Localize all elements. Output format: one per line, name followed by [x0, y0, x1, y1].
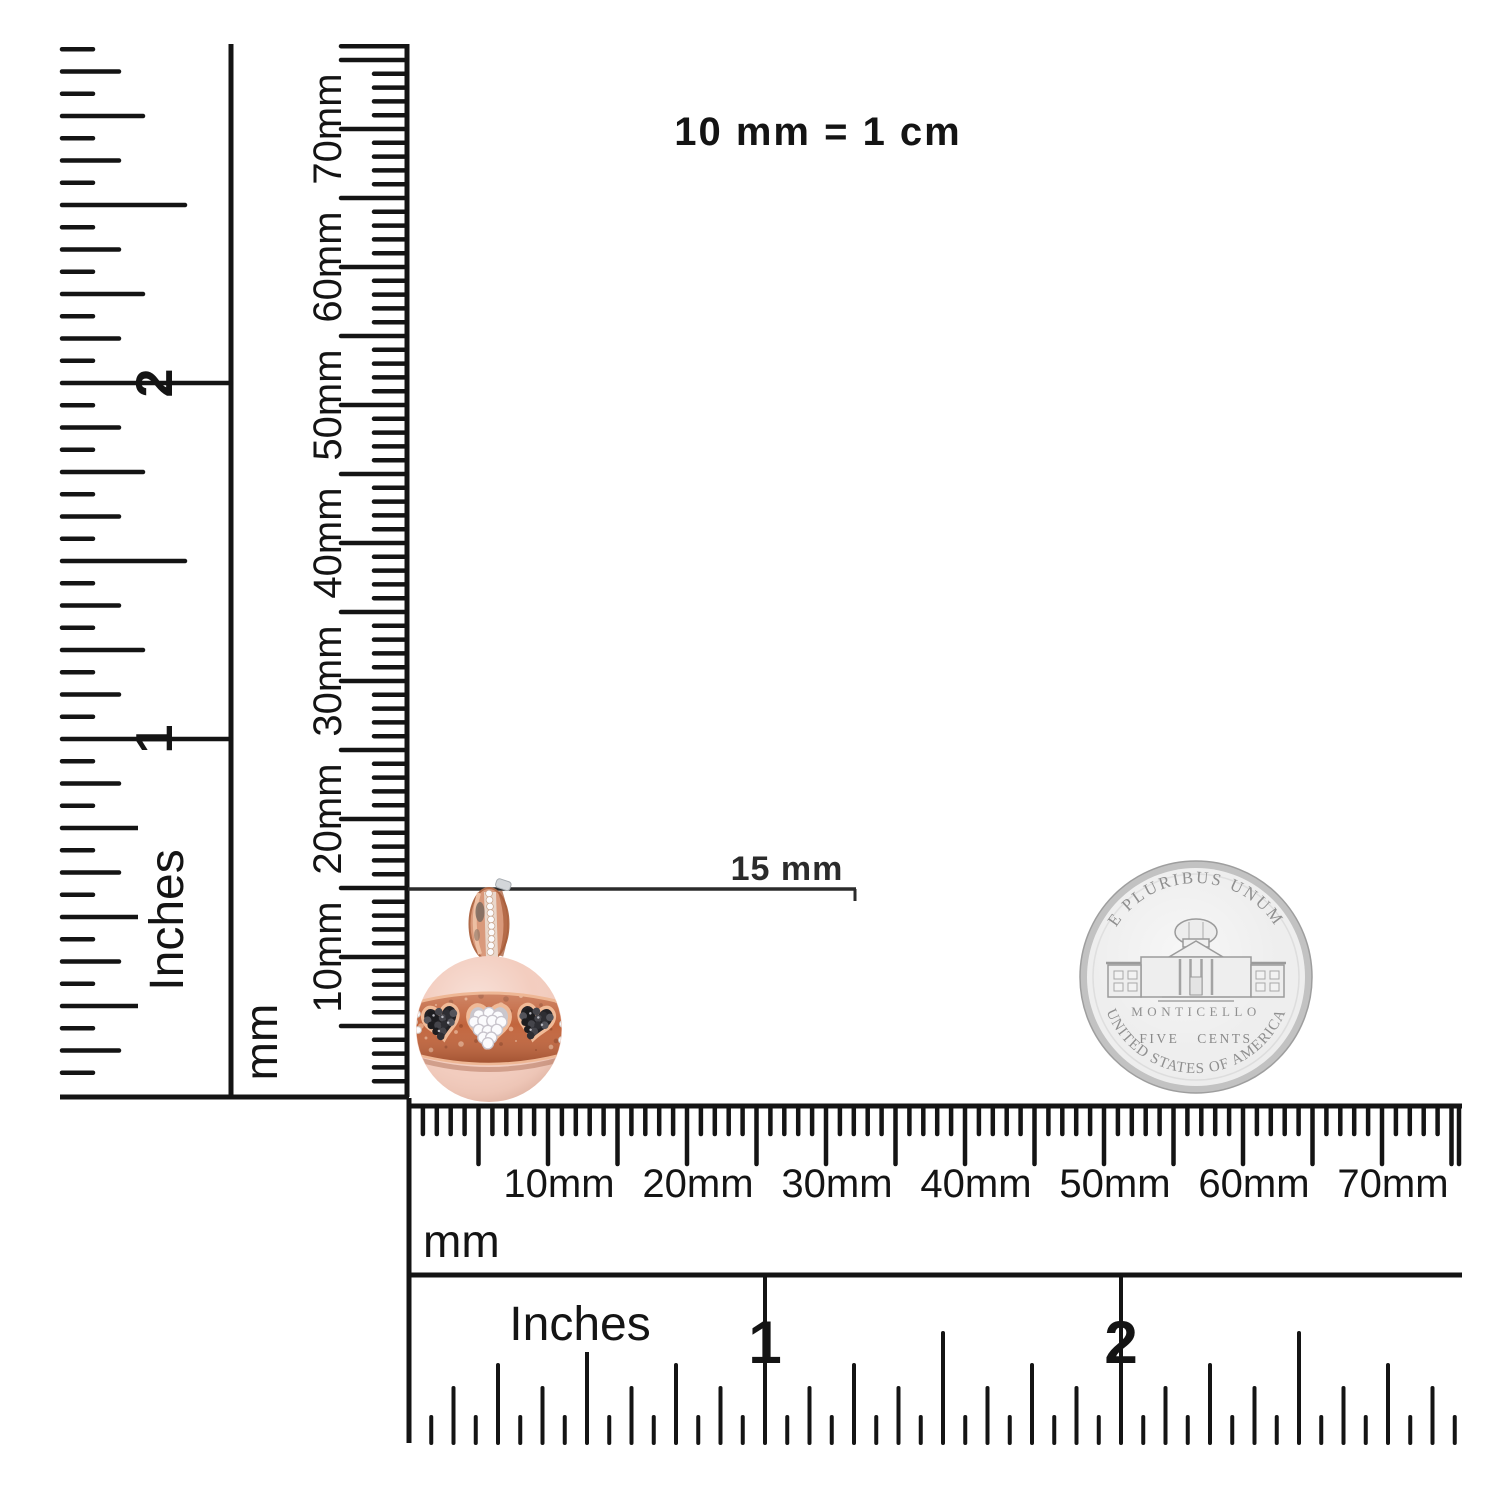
band-edge-pave-stone: [414, 1011, 421, 1018]
horizontal-mm-label: 60mm: [1198, 1162, 1309, 1206]
vertical-mm-ruler: 10mm20mm30mm40mm50mm60mm70mm mm: [235, 44, 407, 1097]
vertical-mm-unit-label: mm: [235, 1004, 287, 1081]
horizontal-inch-ruler: Inches 12: [409, 1098, 1462, 1443]
vertical-mm-label: 10mm: [306, 901, 350, 1012]
nickel-coin: E PLURIBUS UNUM MONTICELLO FIVE CENTS UN…: [1080, 861, 1312, 1093]
horizontal-mm-label: 70mm: [1337, 1162, 1448, 1206]
horizontal-mm-unit-label: mm: [423, 1215, 500, 1267]
building-door: [1190, 977, 1202, 995]
vertical-inches-unit-label: Inches: [141, 849, 194, 990]
horizontal-inch-number: 1: [748, 1309, 781, 1376]
bail-pave-stone: [486, 897, 493, 904]
vertical-inch-ruler: Inches 12: [62, 44, 231, 1097]
bail-pave-stone: [488, 929, 495, 936]
pendant: [410, 878, 571, 1102]
horizontal-inches-unit-label: Inches: [509, 1298, 650, 1351]
horizontal-mm-label: 50mm: [1059, 1162, 1170, 1206]
band-edge-pave-stone: [559, 1037, 566, 1044]
band-edge-pave-stone: [563, 1013, 570, 1020]
band-edge-pave-stone: [410, 1035, 417, 1042]
vertical-mm-label: 60mm: [306, 211, 350, 322]
horizontal-mm-label: 20mm: [642, 1162, 753, 1206]
vertical-mm-label: 20mm: [306, 763, 350, 874]
bail-pave-stone: [487, 903, 494, 910]
horizontal-mm-label: 40mm: [920, 1162, 1031, 1206]
vertical-mm-label: 50mm: [306, 349, 350, 460]
measurement-annotation: 15 mm: [408, 850, 856, 901]
white-pave-stone: [482, 1038, 493, 1049]
size-chart-image: Inches 12 10mm20mm30mm40mm50mm60mm70mm m…: [0, 0, 1500, 1500]
vertical-inch-number: 1: [126, 725, 184, 754]
horizontal-mm-ruler: 10mm20mm30mm40mm50mm60mm70mm mm: [409, 1106, 1462, 1267]
measurement-label: 15 mm: [731, 850, 844, 888]
horizontal-inch-number: 2: [1104, 1309, 1137, 1376]
scale-note: 10 mm = 1 cm: [674, 110, 962, 154]
building-left-wing: [1108, 965, 1141, 997]
band-texture-dot: [415, 995, 417, 997]
band-edge-pave-stone: [560, 1005, 567, 1012]
band-edge-pave-stone: [564, 1029, 571, 1036]
vertical-mm-label: 30mm: [306, 625, 350, 736]
bail-pave-stone: [488, 916, 495, 923]
coin-denomination: FIVE CENTS: [1139, 1031, 1252, 1046]
bail-pave-stone: [486, 890, 493, 897]
vertical-inch-number: 2: [126, 369, 184, 398]
bail-pave-stone: [488, 923, 495, 930]
bail-pave-stone: [487, 949, 494, 956]
band-edge-pave-stone: [415, 1027, 422, 1034]
horizontal-mm-label: 30mm: [781, 1162, 892, 1206]
bail-hole: [476, 902, 485, 922]
bail-pave-stone: [488, 942, 495, 949]
horizontal-mm-label: 10mm: [503, 1162, 614, 1206]
vertical-mm-label: 70mm: [306, 73, 350, 184]
bail-pave-stone: [487, 910, 494, 917]
bail-hole-lower: [474, 929, 480, 941]
coin-building-label: MONTICELLO: [1131, 1004, 1261, 1019]
vertical-mm-label: 40mm: [306, 487, 350, 598]
bail-pave-stone: [488, 936, 495, 943]
building-right-wing: [1251, 965, 1284, 997]
band-edge-pave-stone: [560, 1021, 567, 1028]
band-edge-pave-stone: [410, 1003, 417, 1010]
